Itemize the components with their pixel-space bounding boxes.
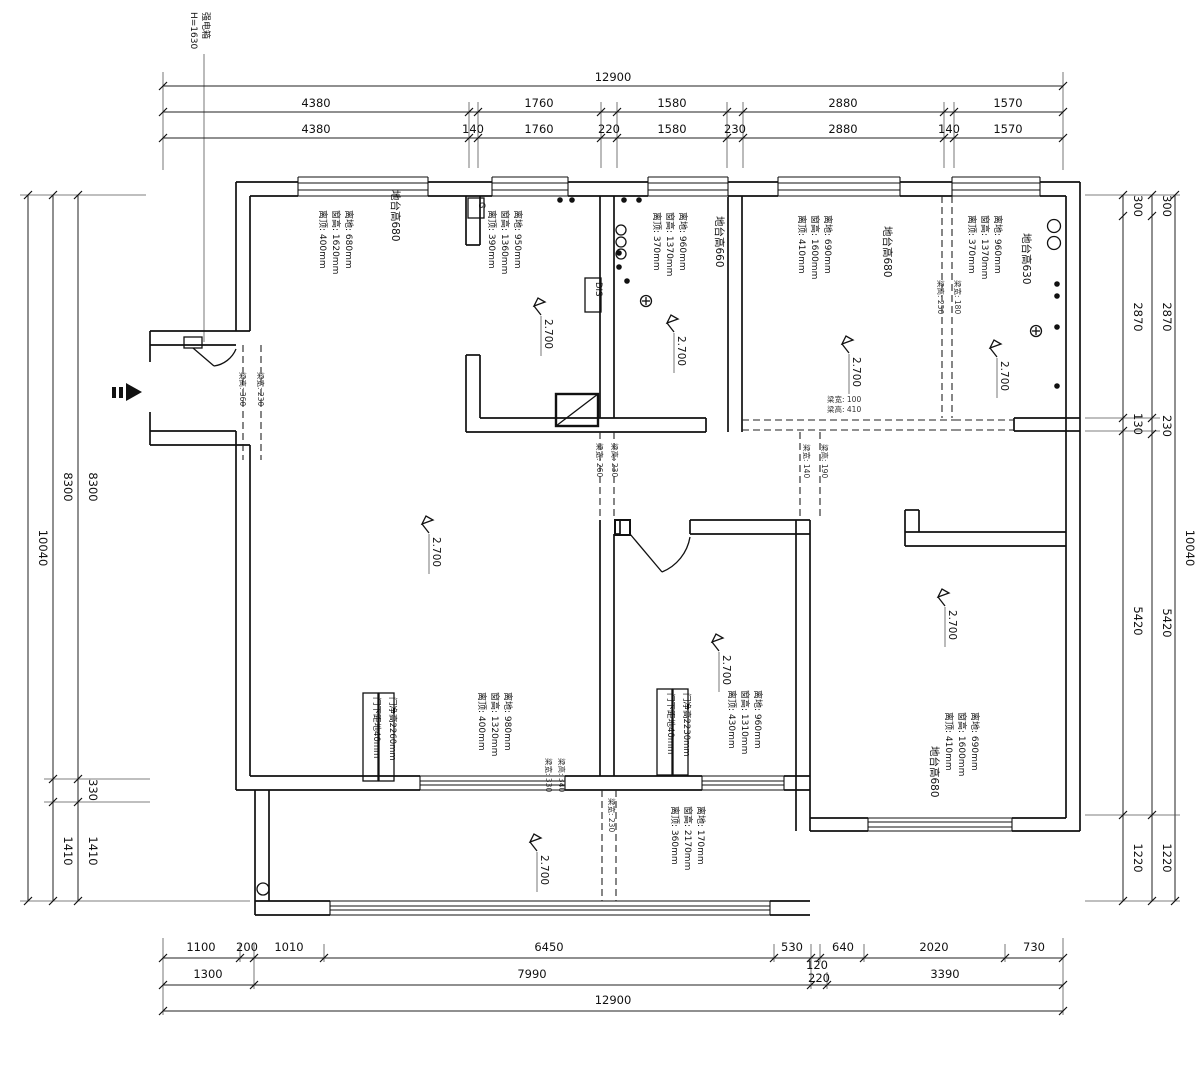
window-spec-line: 窗高: 1310mm [739, 690, 751, 754]
socket-dot [1054, 293, 1060, 299]
socket-dot [616, 250, 622, 256]
beam-label: 梁宽: 260 [595, 443, 605, 477]
dim-right-inner: 130 [1131, 413, 1145, 435]
socket-dot [624, 278, 630, 284]
socket-dot [621, 197, 627, 203]
window-spec-line: 离地: 950mm [512, 210, 524, 269]
beam-label: 梁高: 360 [238, 372, 248, 406]
socket-dot [636, 197, 642, 203]
window-spec-line: 离顶: 360mm [669, 806, 681, 865]
gas-meter-label: G [476, 202, 486, 209]
dim-left-mid: 8300 [61, 472, 75, 501]
dim-left-mid: 1410 [61, 836, 75, 865]
dim-top-detail: 4380 [301, 122, 330, 136]
floor-plan-drawing: H=1630 强电箱 12900 4380 1760 1580 2880 157… [0, 0, 1200, 1075]
ceiling-height: 2.700 [850, 357, 862, 387]
ceiling-height: 2.700 [538, 855, 550, 885]
dim-top-detail: 140 [938, 122, 960, 136]
beam-label: 梁高: 250 [936, 280, 946, 314]
dim-right-inner: 300 [1131, 195, 1145, 217]
beam-label: 梁高: 410 [827, 404, 861, 414]
dim-bottom-detail: 6450 [534, 940, 563, 954]
window-spec-line: 窗高: 1620mm [330, 210, 342, 274]
dim-left-total: 10040 [36, 530, 50, 567]
floor-plan-page: H=1630 强电箱 12900 4380 1760 1580 2880 157… [0, 0, 1200, 1075]
beam-label: 梁宽: 230 [607, 798, 617, 832]
beam-label: 梁宽: 100 [827, 394, 861, 404]
window-spec-line: 窗高: 1600mm [809, 215, 821, 279]
platform-label: 地台高680 [881, 226, 894, 278]
light-symbol-icon [1031, 326, 1042, 337]
window-spec-line: 离顶: 400mm [317, 210, 329, 269]
dim-bottom-detail: 200 [236, 940, 258, 954]
dim-right-mid: 2870 [1160, 302, 1174, 331]
platform-label: 地台高630 [1020, 233, 1033, 285]
dim-bottom-seg: 7990 [517, 967, 546, 981]
dim-left-inner: 330 [86, 779, 100, 801]
dim-top-detail: 230 [724, 122, 746, 136]
dim-bottom-seg: 1300 [193, 967, 222, 981]
dim-bottom-detail: 1010 [274, 940, 303, 954]
beam-label: 梁宽: 230 [256, 372, 266, 406]
dim-top-detail: 1580 [657, 122, 686, 136]
socket-dot [557, 197, 563, 203]
dim-bottom-seg: 3390 [930, 967, 959, 981]
window-spec-line: 窗高: 1320mm [489, 692, 501, 756]
door-clear-height: 门净高2260mm [387, 697, 398, 761]
dim-right-inner: 1220 [1131, 843, 1145, 872]
door-clear-height: 门净高2230mm [681, 693, 692, 757]
dim-top-detail: 140 [462, 122, 484, 136]
dim-top-detail: 1570 [993, 122, 1022, 136]
light-symbol-icon [641, 296, 652, 307]
socket-dot [1054, 324, 1060, 330]
window-spec-line: 离地: 980mm [502, 692, 514, 751]
dim-bottom-detail: 640 [832, 940, 854, 954]
dim-right-total: 10040 [1183, 530, 1197, 567]
beam-label: 梁高: 230 [610, 443, 620, 477]
socket-dot [1054, 383, 1060, 389]
platform-label: 地台高680 [928, 746, 941, 798]
dim-top-seg: 1580 [657, 96, 686, 110]
socket-dot [616, 264, 622, 270]
dim-top-seg: 1570 [993, 96, 1022, 110]
ceiling-height: 2.700 [946, 610, 958, 640]
dis-label: DIS [593, 282, 603, 296]
socket-dot [1054, 281, 1060, 287]
dim-top-total: 12900 [595, 70, 632, 84]
beam-label: 梁高: 190 [820, 444, 830, 478]
dim-top-seg: 1760 [524, 96, 553, 110]
dim-left-inner: 8300 [86, 472, 100, 501]
dim-bottom-detail: 530 [781, 940, 803, 954]
window-spec-line: 窗高: 1370mm [979, 215, 991, 279]
dim-top-seg: 4380 [301, 96, 330, 110]
strong-box-label: 强电箱 [200, 12, 212, 39]
dim-right-mid: 1220 [1160, 843, 1174, 872]
ceiling-height: 2.700 [675, 336, 687, 366]
window-spec-line: 离顶: 410mm [796, 215, 808, 274]
window-spec-line: 离地: 960mm [677, 212, 689, 271]
door-clear-height: 门下距地40mm [665, 693, 676, 754]
dim-top-seg: 2880 [828, 96, 857, 110]
window-spec-line: 窗高: 1360mm [499, 210, 511, 274]
window-spec-line: 窗高: 2170mm [682, 806, 694, 870]
beam-label: 梁宽: 330 [544, 758, 554, 792]
window-spec-line: 离地: 170mm [695, 806, 707, 865]
ceiling-height: 2.700 [430, 537, 442, 567]
dim-right-mid: 300 [1160, 195, 1174, 217]
dim-bottom-seg: 220 [808, 971, 830, 985]
window-spec-line: 离顶: 390mm [486, 210, 498, 269]
beam-label: 梁宽: 180 [953, 280, 963, 314]
dim-right-mid: 5420 [1160, 608, 1174, 637]
window-spec-line: 离顶: 400mm [476, 692, 488, 751]
window-spec-line: 窗高: 1370mm [664, 212, 676, 276]
window-spec-line: 离顶: 370mm [966, 215, 978, 274]
window-spec-line: 离顶: 410mm [943, 712, 955, 771]
socket-dot [569, 197, 575, 203]
beam-label: 梁高: 340 [557, 758, 567, 792]
platform-label: 地台高660 [713, 216, 726, 268]
ceiling-height: 2.700 [720, 655, 732, 685]
dim-right-mid: 230 [1160, 415, 1174, 437]
window-spec-line: 窗高: 1600mm [956, 712, 968, 776]
dim-right-inner: 2870 [1131, 302, 1145, 331]
platform-label: 地台高680 [389, 190, 402, 242]
ceiling-height: 2.700 [998, 361, 1010, 391]
window-spec-line: 离顶: 370mm [651, 212, 663, 271]
strong-box-height-label: H=1630 [188, 12, 198, 49]
window-spec-line: 离顶: 430mm [726, 690, 738, 749]
dim-bottom-detail: 120 [806, 958, 828, 972]
dim-right-inner: 5420 [1131, 606, 1145, 635]
dim-top-detail: 2880 [828, 122, 857, 136]
dim-bottom-detail: 2020 [919, 940, 948, 954]
ceiling-height: 2.700 [542, 319, 554, 349]
window-spec-line: 离地: 960mm [752, 690, 764, 749]
window-spec-line: 离地: 960mm [992, 215, 1004, 274]
dim-top-detail: 1760 [524, 122, 553, 136]
dim-bottom-detail: 1100 [186, 940, 215, 954]
window-spec-line: 离地: 690mm [822, 215, 834, 274]
dim-left-inner: 1410 [86, 836, 100, 865]
dim-bottom-total: 12900 [595, 993, 632, 1007]
beam-label: 梁宽: 140 [802, 444, 812, 478]
window-spec-line: 离地: 680mm [343, 210, 355, 269]
dim-bottom-detail: 730 [1023, 940, 1045, 954]
door-clear-height: 门下距地40mm [371, 697, 382, 758]
dim-top-detail: 220 [598, 122, 620, 136]
window-spec-line: 离地: 690mm [969, 712, 981, 771]
